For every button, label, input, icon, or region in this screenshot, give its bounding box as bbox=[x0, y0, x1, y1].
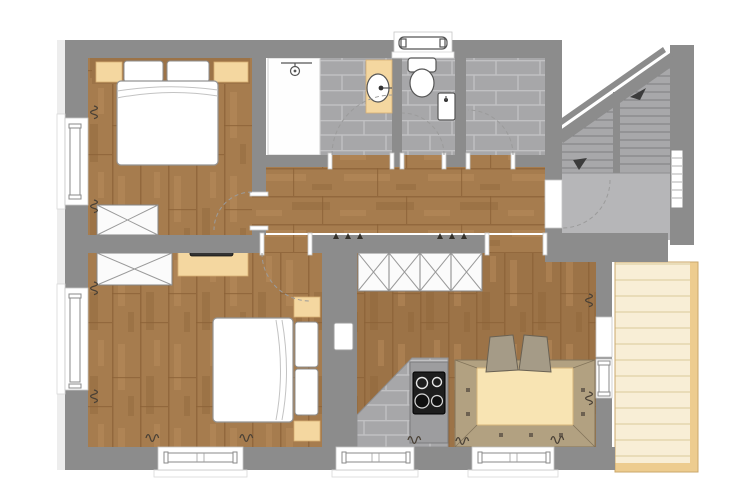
balcony-edge bbox=[690, 262, 698, 472]
balcony-edge bbox=[615, 463, 698, 472]
chair bbox=[486, 335, 518, 372]
nightstand bbox=[96, 62, 122, 82]
floor-plan-drawing: Architectural floor plan, top-down colou… bbox=[0, 0, 755, 500]
radiator bbox=[599, 363, 609, 394]
pillow bbox=[295, 322, 318, 367]
double-bed bbox=[213, 318, 293, 422]
hallway-floor bbox=[266, 167, 545, 233]
pillow bbox=[124, 61, 163, 82]
exterior-shading bbox=[57, 40, 65, 470]
bath-wc-wall bbox=[392, 58, 402, 155]
stair-landing bbox=[562, 173, 670, 240]
radiator bbox=[480, 453, 546, 462]
bedroom-2-door-opening bbox=[262, 235, 310, 253]
pillow bbox=[167, 61, 209, 82]
living-room-opening bbox=[487, 235, 545, 253]
pillow bbox=[295, 369, 318, 415]
radiator bbox=[344, 453, 406, 462]
entrance-door-opening bbox=[545, 180, 562, 228]
wardrobe-row bbox=[358, 253, 482, 291]
storage-door-opening bbox=[468, 155, 513, 167]
storage-floor bbox=[466, 58, 545, 155]
stair-east-wall bbox=[670, 45, 694, 245]
wardrobe bbox=[97, 253, 172, 285]
hand-basin bbox=[438, 93, 455, 120]
vanity-washbasin bbox=[366, 60, 392, 113]
wall-niche bbox=[334, 323, 353, 350]
bathroom-door-opening bbox=[330, 155, 392, 167]
exterior-wall-left bbox=[65, 40, 88, 470]
balcony-door bbox=[596, 317, 612, 357]
wc-door-opening bbox=[402, 155, 444, 167]
radiator-stairwell bbox=[671, 150, 683, 208]
wc-storage-wall bbox=[455, 58, 466, 155]
exterior-wall-top bbox=[65, 40, 562, 58]
radiator bbox=[70, 126, 80, 197]
nightstand bbox=[214, 62, 248, 82]
nightstand bbox=[294, 421, 320, 441]
stair-flight-divider bbox=[613, 92, 620, 173]
wardrobe bbox=[97, 205, 158, 235]
radiator bbox=[70, 296, 80, 382]
chair bbox=[519, 335, 551, 372]
dining-table bbox=[477, 368, 573, 425]
cooktop bbox=[413, 372, 445, 414]
corner-bench bbox=[455, 360, 595, 447]
toilet bbox=[408, 58, 436, 97]
bedroom-1-door-opening bbox=[252, 192, 266, 230]
balcony-deck bbox=[615, 262, 690, 463]
nightstand bbox=[294, 297, 320, 317]
radiator bbox=[166, 453, 235, 462]
floor-plan-canvas: Architectural floor plan, top-down colou… bbox=[0, 0, 755, 500]
balcony bbox=[615, 262, 698, 472]
